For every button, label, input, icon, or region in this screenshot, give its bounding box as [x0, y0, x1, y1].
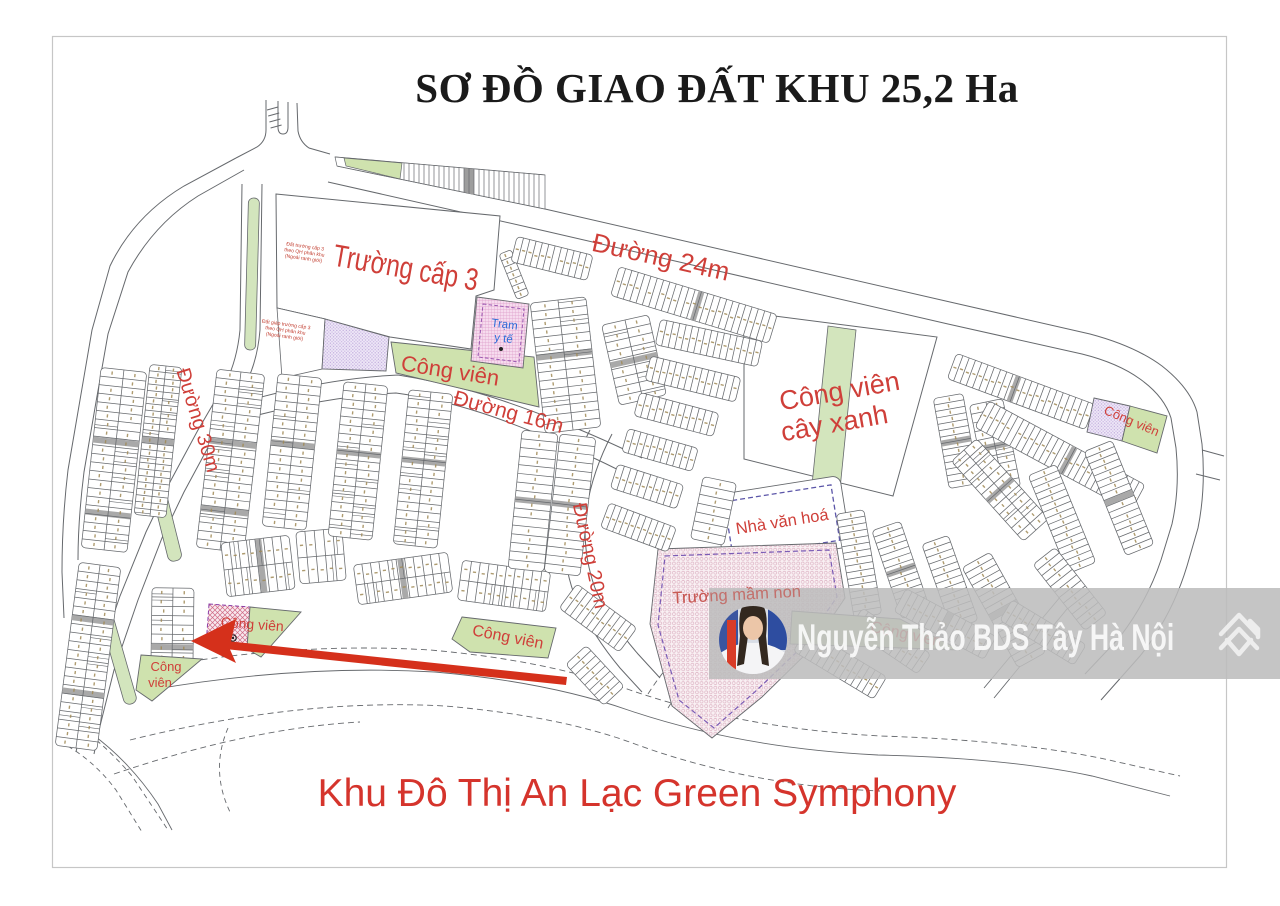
svg-text:Nguyễn Thảo BDS Tây Hà Nội: Nguyễn Thảo BDS Tây Hà Nội [797, 617, 1174, 658]
svg-text:SƠ ĐỒ GIAO ĐẤT KHU 25,2 Ha: SƠ ĐỒ GIAO ĐẤT KHU 25,2 Ha [415, 65, 1018, 111]
svg-text:Công: Công [150, 659, 181, 674]
svg-text:y tế: y tế [494, 332, 514, 346]
svg-text:Khu Đô Thị An Lạc Green Sympho: Khu Đô Thị An Lạc Green Symphony [318, 772, 957, 815]
svg-text:viên: viên [148, 675, 172, 690]
